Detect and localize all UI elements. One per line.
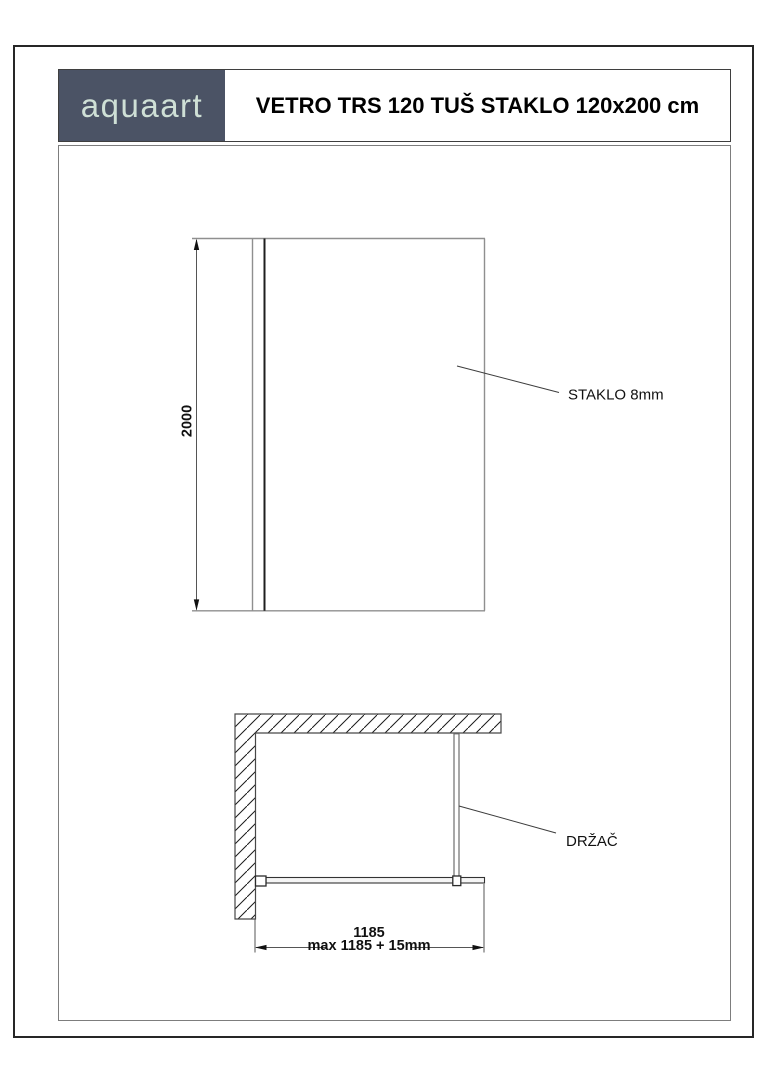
support-bar-clamp [453, 876, 461, 886]
wall-profile-plan [256, 876, 267, 886]
spec-sheet-page: aquaart VETRO TRS 120 TUŠ STAKLO 120x200… [0, 0, 768, 1086]
dimension-arrow-down [194, 599, 199, 610]
support-bar [454, 734, 459, 878]
glass-label: STAKLO 8mm [568, 387, 664, 404]
dimension-arrow-right [473, 945, 485, 950]
dimension-arrow-up [194, 239, 199, 250]
height-dimension: 2000 [180, 239, 200, 611]
glass-plan [266, 878, 485, 884]
glass-leader-line [457, 366, 559, 393]
support-label: DRŽAČ [566, 833, 618, 850]
technical-drawing: 2000 STAKLO 8mm DRŽAČ [0, 0, 768, 1086]
front-view: 2000 STAKLO 8mm [180, 239, 664, 611]
height-dimension-text: 2000 [180, 405, 196, 437]
width-dimension-max-text: max 1185 + 15mm [308, 938, 431, 954]
plan-view: DRŽAČ 1185 max 1185 + 15mm [235, 714, 618, 954]
support-leader-line [459, 806, 556, 833]
width-dimension: 1185 max 1185 + 15mm [255, 884, 484, 954]
dimension-arrow-left [255, 945, 267, 950]
hatched-wall [235, 714, 501, 919]
